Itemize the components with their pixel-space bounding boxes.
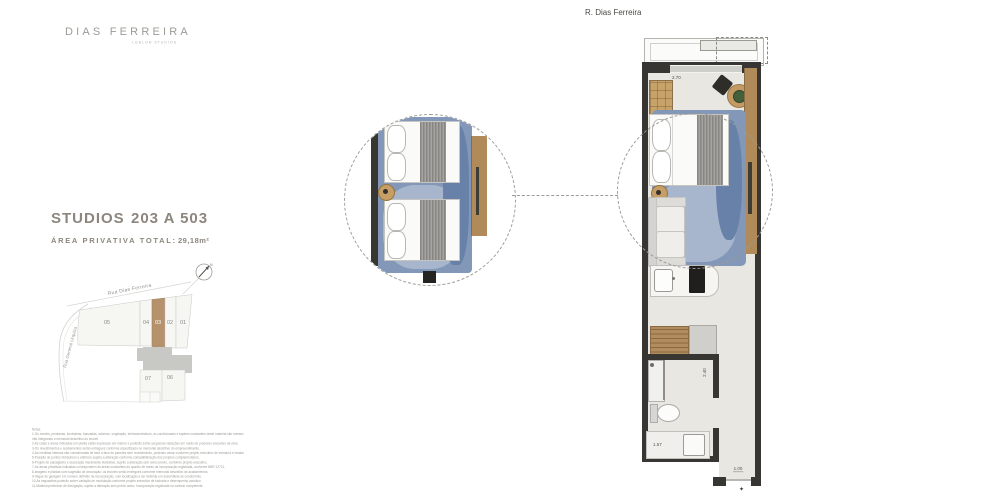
street-label-rua-general-urquiza: Rua General Urquiza (62, 326, 78, 369)
logo-subtitle: LEBLON STUDIOS (95, 41, 177, 45)
plan-callout-circle (617, 113, 773, 269)
lot-label-06: 06 (167, 375, 173, 381)
svg-text:N: N (210, 263, 213, 267)
detail-left-wall (371, 124, 378, 266)
dimension-bedroom: 2.70 (672, 76, 681, 80)
compass-north-icon: N (196, 263, 213, 280)
dimension-entry: 1.00 (733, 467, 743, 472)
detail-callout-circle (344, 114, 516, 286)
lot-label-01: 01 (180, 320, 186, 326)
pillow (387, 203, 406, 231)
toilet (657, 404, 680, 422)
entry-arrow-icon: ✦ (739, 486, 744, 493)
pillow (387, 125, 406, 153)
dimension-vanity: 1.57 (653, 443, 662, 447)
lot-label-05: 05 (104, 320, 110, 326)
detail-cooktop-edge (423, 271, 436, 283)
callout-leader-line (512, 195, 618, 196)
shower-glass (663, 360, 665, 400)
lot-label-07: 07 (145, 376, 151, 382)
vanity-sink (683, 434, 705, 456)
kitchen-sink (654, 269, 673, 292)
unit-type-heading: STUDIOS (51, 210, 125, 227)
page: DIAS FERREIRA LEBLON STUDIOS STUDIOS 203… (0, 0, 1000, 500)
boundary-line-bottom (65, 401, 140, 402)
lot-label-03: 03 (155, 320, 161, 326)
dimension-bath: 2.40 (703, 368, 707, 377)
building-shape-a (143, 347, 172, 370)
site-map: N Rua Dias Ferreira Rua General Urquiza … (55, 260, 245, 415)
building-shape-c (137, 348, 143, 361)
detail-lamp (383, 189, 388, 194)
bed-runner (420, 200, 446, 260)
disclaimer-line: 11-Material preliminar de divulgação, su… (32, 484, 244, 489)
entry-door-threshold (726, 479, 751, 481)
faucet (672, 277, 675, 280)
plan-street-label: R. Dias Ferreira (585, 8, 641, 17)
unit-range-heading: 203 A 503 (131, 210, 208, 227)
logo: DIAS FERREIRA (65, 26, 191, 38)
disclaimer: Notas: 1-Os móveis, persianas, luminária… (32, 428, 244, 489)
balcony-glass-door (670, 65, 742, 73)
pillow (387, 153, 406, 181)
area-label: ÁREA PRIVATIVA TOTAL: (51, 236, 177, 245)
area-value: 29,18m² (178, 236, 209, 245)
lot-label-02: 02 (167, 320, 173, 326)
detail-wood-panel (471, 136, 487, 236)
cooktop (689, 266, 705, 293)
lot-label-04: 04 (143, 320, 149, 326)
detail-single-bed-2 (384, 199, 460, 261)
entry-wall-left (713, 477, 726, 486)
street-label-rua-dias-ferreira: Rua Dias Ferreira (107, 283, 152, 297)
entry-wall-right (751, 477, 761, 486)
pillow (387, 231, 406, 259)
detail-single-bed-1 (384, 121, 460, 183)
shower-head (650, 363, 654, 367)
projection-dashed-rect (716, 37, 768, 64)
bed-runner (420, 122, 446, 182)
logo-title: DIAS FERREIRA (65, 26, 191, 38)
bathroom-right-wall-a (713, 354, 719, 398)
detail-panel-handle (476, 167, 479, 215)
